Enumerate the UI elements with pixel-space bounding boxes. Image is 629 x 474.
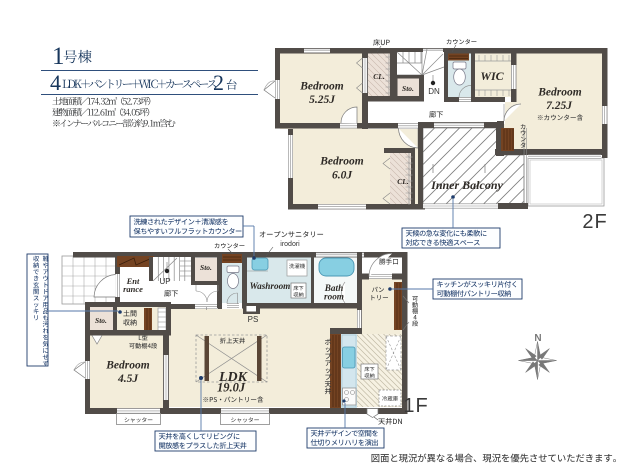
svg-text:Sto.: Sto. [402, 84, 414, 93]
svg-text:Bedroom: Bedroom [299, 81, 344, 93]
svg-text:Sto.: Sto. [200, 263, 212, 272]
svg-text:4.5J: 4.5J [117, 373, 139, 385]
svg-text:PS: PS [248, 315, 259, 324]
svg-text:7.25J: 7.25J [546, 100, 573, 112]
svg-text:DN: DN [428, 87, 440, 96]
svg-text:1F: 1F [403, 395, 428, 417]
svg-text:Bedroom: Bedroom [319, 156, 364, 168]
svg-text:rance: rance [123, 284, 143, 294]
svg-text:5.25J: 5.25J [309, 94, 336, 106]
svg-text:2F: 2F [582, 211, 607, 233]
svg-text:Washroom: Washroom [250, 281, 291, 291]
svg-text:room: room [324, 292, 344, 302]
svg-text:UP: UP [159, 277, 170, 286]
svg-text:4: 4 [50, 70, 61, 95]
svg-text:Inner Balcony: Inner Balcony [430, 178, 503, 192]
svg-text:1: 1 [52, 43, 65, 70]
svg-text:Bedroom: Bedroom [105, 360, 150, 372]
svg-text:19.0J: 19.0J [217, 381, 246, 395]
svg-text:2: 2 [213, 70, 224, 95]
svg-text:CL.: CL. [397, 177, 409, 186]
svg-text:Sto.: Sto. [95, 316, 107, 325]
svg-text:Bedroom: Bedroom [537, 87, 582, 99]
svg-text:6.0J: 6.0J [332, 170, 353, 182]
svg-text:irodori: irodori [280, 241, 300, 248]
svg-text:N: N [534, 333, 541, 344]
svg-text:WIC: WIC [480, 69, 504, 83]
svg-text:CL.: CL. [373, 72, 385, 81]
